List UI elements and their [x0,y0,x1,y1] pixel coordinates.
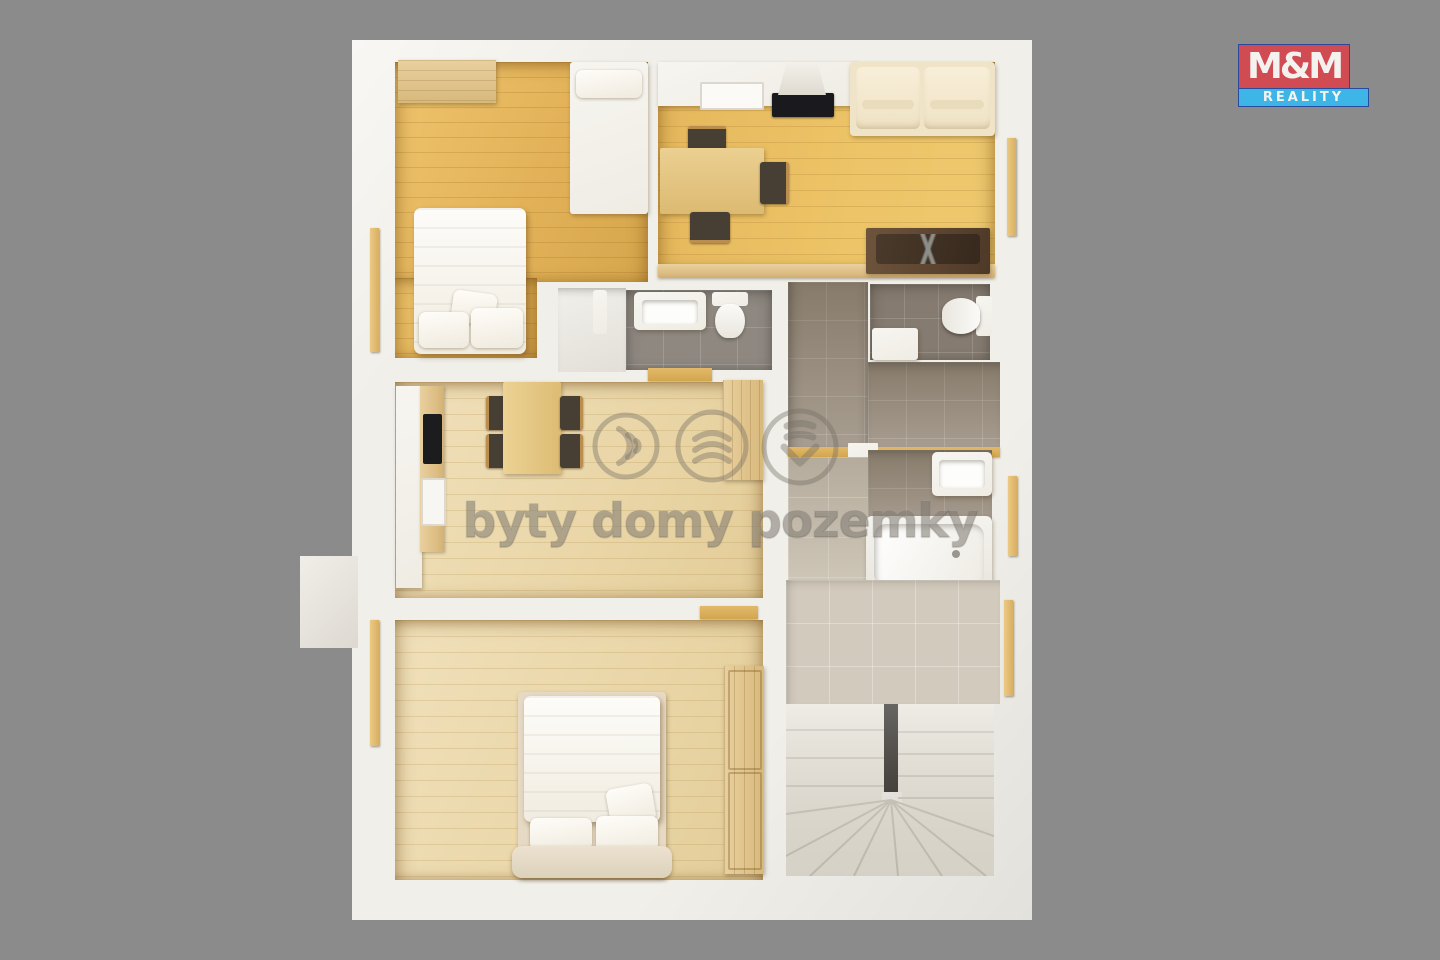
staircase-drawing [786,704,994,876]
kitchen2-wardrobe [723,380,763,480]
towel [593,290,607,334]
kitchen-sink [700,82,764,110]
door-bathroom-right [1008,476,1017,556]
agency-logo-title: M&M [1238,44,1350,89]
bathroom-washbasin [932,452,992,496]
sofa-back-pillow-2 [930,100,984,109]
kitchen2-table [503,382,561,474]
single-bed [570,62,648,214]
threshold-kitchen-bedroom [700,606,758,619]
wc-hand-sink [872,328,918,360]
hallway-connector [868,362,1000,450]
terrace-left [300,556,358,648]
toilet-wc [940,294,992,338]
bed-pillow-left [419,312,469,348]
sofa [850,62,995,136]
staircase [786,704,994,876]
dining-table [660,148,764,214]
bedroom2-wardrobe [724,666,764,874]
agency-logo-subtitle: REALITY [1238,88,1369,107]
kitchen2-cooktop [423,414,442,464]
room-shower-white-part [558,288,626,372]
vanity-sink [634,292,706,330]
agency-logo: M&M REALITY [1238,44,1372,106]
door-bedroom-lower [370,620,379,746]
kitchen2-chair-4 [560,434,583,468]
door-living-right [1007,138,1016,236]
hallway-lower [786,580,1000,704]
dining-chair-right [760,162,789,204]
floor-plan-render: byty domy pozemky M&M REALITY [0,0,1440,960]
wall-shelf [398,60,496,103]
kitchen2-chair-3 [560,396,583,430]
coffee-table-top [876,234,980,264]
kitchen2-counter-white [396,386,422,588]
kitchen2-counter-wood [420,386,444,552]
toilet-shower-room [710,292,750,340]
sofa-cushion-left [856,67,920,129]
sofa-back-pillow [862,100,914,109]
sofa-cushion-right [924,67,990,129]
bathtub-faucet [952,550,960,558]
watermark-text: byty domy pozemky [463,494,978,549]
door-hall-right [1004,600,1013,696]
threshold-shower-room [648,368,712,381]
coffee-table [866,228,990,274]
bed-pillow-right [471,308,523,348]
bed2-bench [512,846,672,878]
door-bedroom-upper [370,228,379,352]
cooktop [772,93,834,117]
single-bed-pillow [576,70,642,98]
hallway-upper [788,282,868,450]
dining-chair-bottom [690,212,730,243]
vanity-basin [642,300,698,324]
kitchen2-sink [421,478,446,526]
